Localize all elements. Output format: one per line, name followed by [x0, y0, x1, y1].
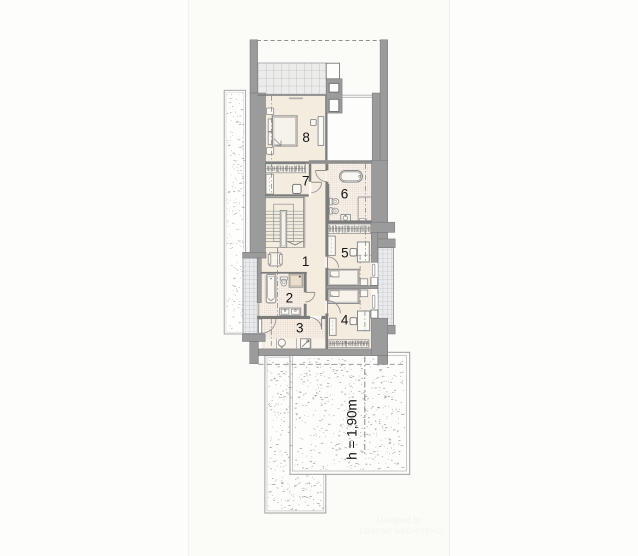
svg-text:2: 2: [286, 291, 294, 306]
svg-text:7: 7: [302, 174, 310, 189]
svg-text:4: 4: [341, 313, 349, 328]
svg-text:6: 6: [341, 186, 349, 201]
svg-text:h = 1,90m: h = 1,90m: [344, 399, 359, 459]
svg-text:LORENC ARCHITEKCI: LORENC ARCHITEKCI: [359, 529, 444, 536]
svg-text:Designed by: Designed by: [376, 515, 422, 525]
svg-text:1: 1: [302, 254, 310, 269]
svg-text:5: 5: [341, 246, 349, 261]
svg-text:8: 8: [302, 130, 310, 145]
svg-text:3: 3: [296, 320, 304, 335]
